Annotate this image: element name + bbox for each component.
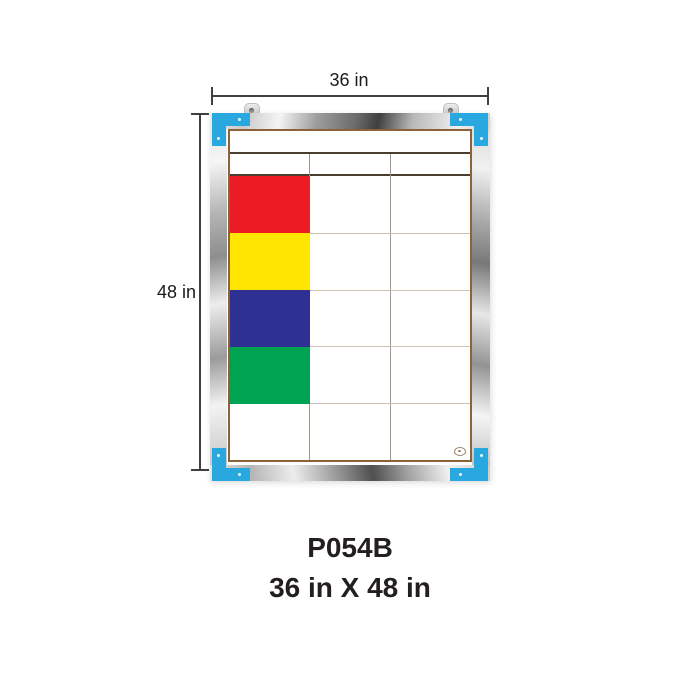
height-dimension-tick-bottom <box>191 469 209 471</box>
screw-icon <box>217 137 220 140</box>
product-size: 36 in X 48 in <box>0 573 700 603</box>
legend-cell-red <box>230 176 310 233</box>
height-dimension-tick-top <box>191 113 209 115</box>
screw-icon <box>238 473 241 476</box>
width-dimension-line <box>212 95 489 97</box>
legend-cell-yellow <box>230 233 310 290</box>
frame-bottom <box>210 465 490 481</box>
bracket-arm <box>474 448 488 481</box>
legend-cell-green <box>230 347 310 404</box>
product-image: 36 in 48 in <box>0 0 700 700</box>
height-dimension-line <box>199 114 201 471</box>
height-dimension-label: 48 in <box>118 282 196 302</box>
width-dimension-tick-left <box>211 87 213 105</box>
width-dimension-tick-right <box>487 87 489 105</box>
corner-bracket-bottom-right <box>450 448 488 481</box>
whiteboard <box>210 113 490 481</box>
screw-icon <box>459 473 462 476</box>
caption: P054B 36 in X 48 in <box>0 533 700 603</box>
product-model: P054B <box>0 533 700 563</box>
screw-icon <box>480 454 483 457</box>
screw-icon <box>459 118 462 121</box>
width-dimension-label: 36 in <box>269 70 429 90</box>
corner-bracket-bottom-left <box>212 448 250 481</box>
bracket-arm <box>212 448 226 481</box>
bracket-arm <box>474 113 488 146</box>
column-separator <box>390 154 391 460</box>
frame-top <box>210 113 490 129</box>
bracket-arm <box>212 113 226 146</box>
corner-bracket-top-left <box>212 113 250 146</box>
screw-icon <box>238 118 241 121</box>
screw-icon <box>217 454 220 457</box>
header-row-separator <box>230 152 470 154</box>
legend-cell-navy <box>230 290 310 347</box>
corner-bracket-top-right <box>450 113 488 146</box>
board-grid <box>228 129 472 462</box>
screw-icon <box>480 137 483 140</box>
frame-left <box>210 129 227 465</box>
frame-right <box>472 129 490 465</box>
